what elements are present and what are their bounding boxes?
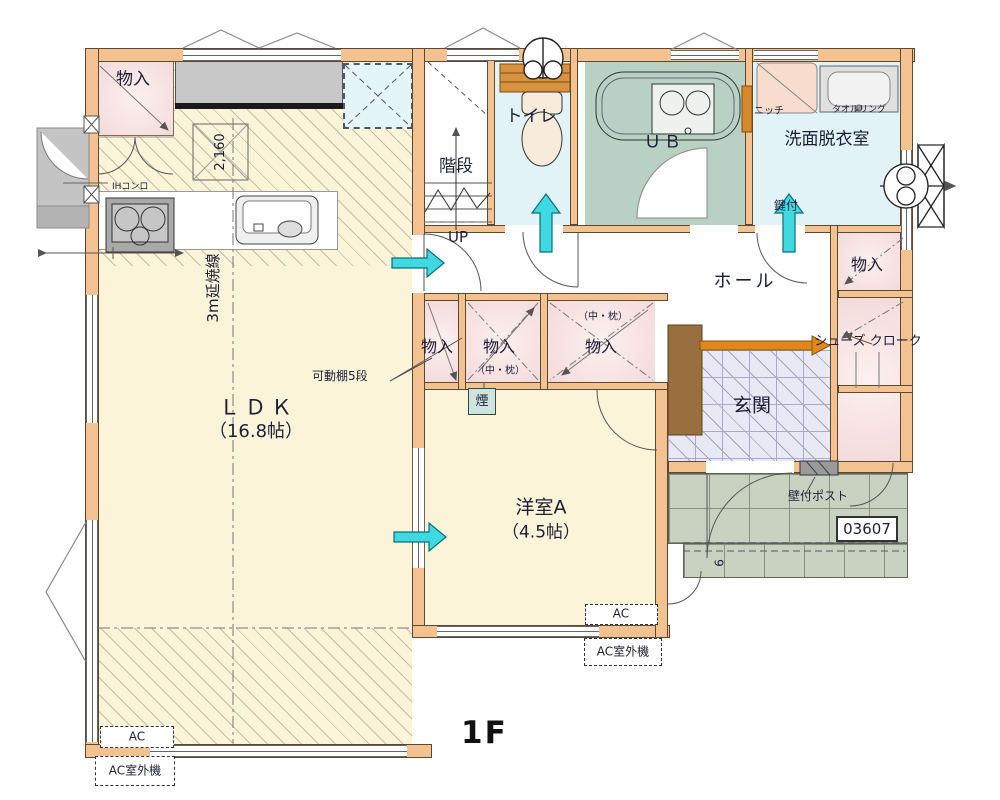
kitchen-sink-icon <box>236 196 318 244</box>
annotation-wall-post: 壁付ポスト <box>788 490 848 503</box>
plan-symbols <box>0 0 1000 800</box>
room-label-stairs: 階段 <box>439 158 473 177</box>
awning-triangle-icons <box>46 28 738 662</box>
closet-label-a: 物入 <box>421 338 453 356</box>
annotation-niche: ニッチ <box>754 106 784 117</box>
closet-note-c: （中・枕） <box>578 312 628 323</box>
porch-step-lines <box>683 543 905 551</box>
porch-step-count: 9 <box>711 559 724 567</box>
ac-label-ldk: AC <box>129 730 145 743</box>
room-label-shoes-closet: シューズ クローク <box>814 335 921 349</box>
annotation-movable-shelf: 可動棚5段 <box>312 370 368 383</box>
annotation-lockable: 鍵付 <box>774 199 798 212</box>
room-label-bath: ＵＢ <box>644 134 684 153</box>
counter-edge-line <box>175 103 343 109</box>
ac-outdoor-label-western: AC室外機 <box>597 645 649 658</box>
stairs-treads <box>424 62 494 230</box>
fridge-x-mark <box>345 65 411 127</box>
annotation-fire-spread-line: 3m延焼線 <box>205 253 222 322</box>
annotation-smoke: 煙 <box>475 395 488 409</box>
shoe-cabinet <box>668 325 702 435</box>
room-label-entrance: 玄関 <box>733 396 771 417</box>
kitchen-storage-doors <box>98 137 173 174</box>
bath-door-swing <box>637 148 707 218</box>
door-swings <box>424 232 893 604</box>
room-label-toilet: トイレ <box>506 108 557 127</box>
bathtub-icon <box>596 72 740 140</box>
room-label-western-a: 洋室A <box>516 498 567 519</box>
closet-label-b: 物入 <box>483 338 515 356</box>
room-label-hall: ホール <box>714 272 777 292</box>
ac-outdoor-label-ldk: AC室外機 <box>109 764 161 777</box>
annotation-ih-stove: IHコンロ <box>112 183 148 193</box>
entrance-step-bar <box>700 336 830 355</box>
closet-note-b: （中・枕） <box>475 366 525 377</box>
closet-label-hall: 物入 <box>851 256 883 274</box>
ac-label-western: AC <box>613 607 629 620</box>
stove-icon <box>106 198 174 252</box>
back-door-unit <box>37 128 108 228</box>
closet-label-kitchen: 物入 <box>116 71 150 90</box>
annotation-towel-ring: タオルリング <box>832 106 886 116</box>
stairs-up-label: UP <box>448 229 468 246</box>
floor-label: 1F <box>461 716 508 750</box>
room-label-washroom: 洗面脱衣室 <box>785 131 870 150</box>
exhaust-fan-icon <box>880 145 955 227</box>
closet-label-c: 物入 <box>585 338 617 356</box>
floor-plan-1f: ＬＤＫ （16.8帖） 洋室A （4.5帖） 階段 UP トイレ ＵＢ 洗面脱衣… <box>0 0 1000 800</box>
room-label-ldk: ＬＤＫ <box>219 396 297 419</box>
room-size-western-a: （4.5帖） <box>502 524 580 543</box>
drawing-number: 03607 <box>843 521 891 538</box>
annotation-counter-dimension: 2,160 <box>214 133 228 170</box>
toilet-fixture-icon <box>522 92 562 166</box>
room-size-ldk: （16.8帖） <box>209 422 303 442</box>
toilet-fan-icon <box>523 38 563 79</box>
niche-icon <box>742 86 752 132</box>
